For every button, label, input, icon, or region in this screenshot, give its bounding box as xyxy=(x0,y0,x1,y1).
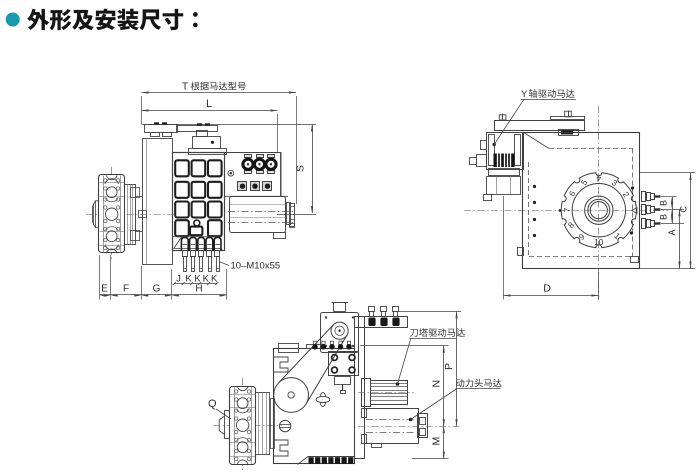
svg-text:A: A xyxy=(667,229,677,235)
svg-text:N: N xyxy=(431,380,443,388)
svg-text:K: K xyxy=(185,274,192,285)
svg-text:K: K xyxy=(203,274,210,285)
svg-text:P: P xyxy=(443,363,455,370)
svg-text:M: M xyxy=(431,437,443,446)
svg-text:E: E xyxy=(101,284,108,295)
svg-text:G: G xyxy=(153,284,161,295)
svg-text:B: B xyxy=(659,214,669,220)
svg-text:F: F xyxy=(123,284,129,295)
svg-text:7: 7 xyxy=(562,208,572,213)
svg-text:Y: Y xyxy=(521,89,528,100)
svg-text:L: L xyxy=(206,98,212,110)
svg-text:C: C xyxy=(679,206,689,213)
svg-text:S: S xyxy=(295,165,307,172)
svg-text:B: B xyxy=(659,200,669,206)
svg-text:D: D xyxy=(543,283,551,295)
svg-text:10: 10 xyxy=(594,237,604,247)
svg-text:H: H xyxy=(195,284,202,295)
svg-text:Q: Q xyxy=(208,398,217,410)
svg-text:4: 4 xyxy=(596,174,601,184)
svg-text:10–M10x55: 10–M10x55 xyxy=(231,261,281,272)
svg-text:J: J xyxy=(176,274,181,285)
svg-text:T: T xyxy=(182,82,188,93)
svg-text:K: K xyxy=(211,274,218,285)
